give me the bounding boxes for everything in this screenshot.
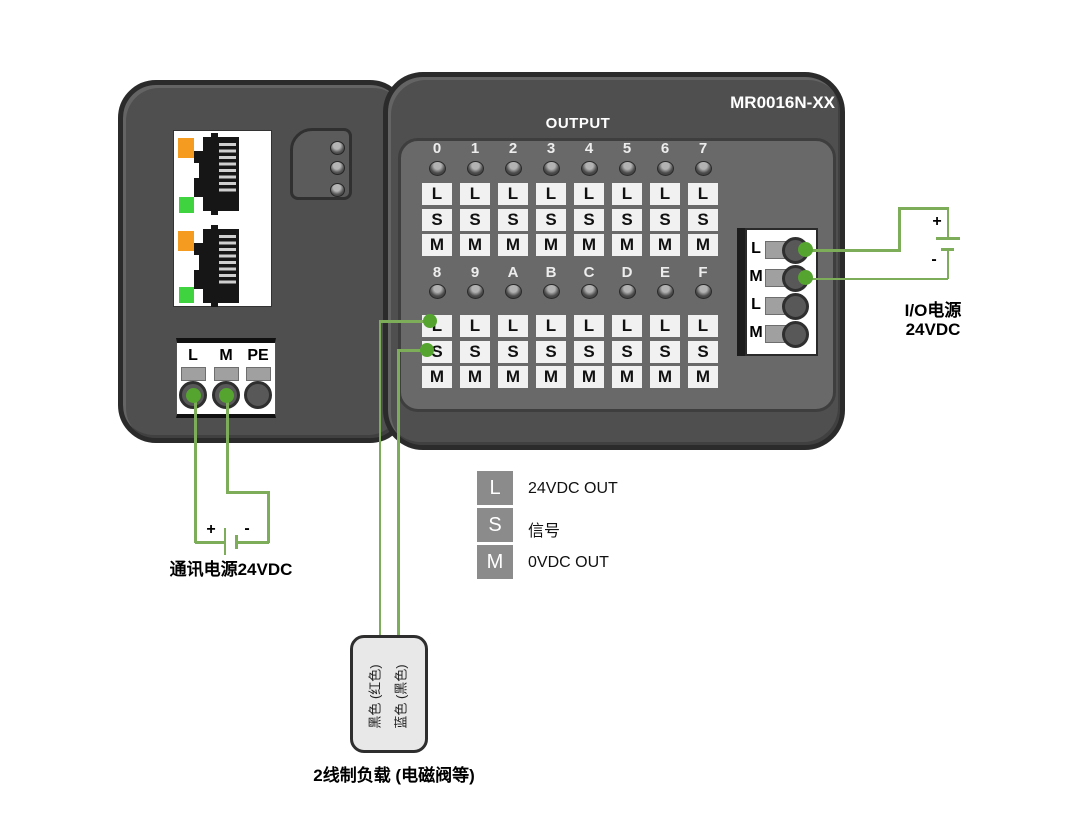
io-terminal-hole xyxy=(782,321,809,348)
terminal-L-ch4: L xyxy=(574,183,604,205)
wire-connection-dot xyxy=(798,270,813,285)
minus-sign: - xyxy=(239,520,255,538)
terminal-M-chF: M xyxy=(688,366,718,388)
channel-number-5: 5 xyxy=(612,140,642,157)
channel-led-icon-2 xyxy=(505,161,522,176)
terminal-S-ch0: S xyxy=(422,209,452,231)
wire-connection-dot xyxy=(219,388,234,403)
terminal-L-ch9: L xyxy=(460,315,490,337)
io-terminal-label-1: M xyxy=(748,268,764,286)
channel-led-icon-F xyxy=(695,284,712,299)
status-led-panel xyxy=(290,128,352,200)
terminal-L-ch5: L xyxy=(612,183,642,205)
terminal-L-chC: L xyxy=(574,315,604,337)
channel-number-9: 9 xyxy=(460,264,490,281)
channel-led-icon-3 xyxy=(543,161,560,176)
wire-segment xyxy=(267,491,270,543)
channel-led-icon-5 xyxy=(619,161,636,176)
comm-terminal-hole xyxy=(244,381,272,409)
legend-key-M: M xyxy=(477,545,513,579)
status-led-icon xyxy=(330,183,345,197)
io-power-label-line1: I/O电源 xyxy=(873,301,993,320)
status-led-icon xyxy=(330,161,345,175)
channel-number-D: D xyxy=(612,264,642,281)
terminal-L-ch1: L xyxy=(460,183,490,205)
io-terminal-label-3: M xyxy=(748,324,764,342)
terminal-L-chA: L xyxy=(498,315,528,337)
wire-segment xyxy=(195,541,225,544)
wire-connection-dot xyxy=(420,343,434,357)
terminal-M-ch7: M xyxy=(688,234,718,256)
wire-segment xyxy=(379,320,382,637)
channel-number-C: C xyxy=(574,264,604,281)
terminal-M-chE: M xyxy=(650,366,680,388)
wire-segment xyxy=(947,248,950,279)
channel-led-icon-7 xyxy=(695,161,712,176)
comm-terminal-label-M: M xyxy=(211,347,241,365)
terminal-M-ch0: M xyxy=(422,234,452,256)
wire-segment xyxy=(898,207,949,210)
terminal-S-chD: S xyxy=(612,341,642,363)
io-terminal-hole xyxy=(782,293,809,320)
legend-key-S: S xyxy=(477,508,513,542)
channel-led-icon-0 xyxy=(429,161,446,176)
terminal-S-ch1: S xyxy=(460,209,490,231)
channel-led-icon-4 xyxy=(581,161,598,176)
terminal-L-chB: L xyxy=(536,315,566,337)
terminal-S-chE: S xyxy=(650,341,680,363)
wire-segment xyxy=(806,249,901,252)
battery-minus-plate-icon xyxy=(235,535,238,549)
io-terminal-label-2: L xyxy=(748,296,764,314)
channel-number-6: 6 xyxy=(650,140,680,157)
output-section-label: OUTPUT xyxy=(518,115,638,132)
terminal-M-ch4: M xyxy=(574,234,604,256)
terminal-M-ch1: M xyxy=(460,234,490,256)
channel-number-E: E xyxy=(650,264,680,281)
channel-led-icon-9 xyxy=(467,284,484,299)
terminal-M-chA: M xyxy=(498,366,528,388)
channel-led-icon-E xyxy=(657,284,674,299)
channel-number-B: B xyxy=(536,264,566,281)
terminal-S-ch4: S xyxy=(574,209,604,231)
wire-segment xyxy=(947,207,950,238)
channel-number-1: 1 xyxy=(460,140,490,157)
plus-sign: + xyxy=(203,521,219,539)
terminal-M-chC: M xyxy=(574,366,604,388)
io-power-label-line2: 24VDC xyxy=(873,320,993,339)
terminal-M-chB: M xyxy=(536,366,566,388)
terminal-S-chC: S xyxy=(574,341,604,363)
terminal-L-chF: L xyxy=(688,315,718,337)
io-power-label: I/O电源 24VDC xyxy=(873,301,993,339)
comm-terminal-label-PE: PE xyxy=(243,347,273,365)
load-box xyxy=(350,635,428,753)
wire-segment xyxy=(226,397,229,493)
terminal-M-ch5: M xyxy=(612,234,642,256)
channel-number-8: 8 xyxy=(422,264,452,281)
terminal-S-chA: S xyxy=(498,341,528,363)
terminal-L-ch2: L xyxy=(498,183,528,205)
wire-segment xyxy=(806,278,948,281)
channel-led-icon-A xyxy=(505,284,522,299)
channel-led-icon-D xyxy=(619,284,636,299)
wire-connection-dot xyxy=(186,388,201,403)
wire-segment xyxy=(397,349,400,637)
wire-segment xyxy=(194,397,197,543)
terminal-L-ch3: L xyxy=(536,183,566,205)
module-model-label: MR0016N-XX xyxy=(690,93,835,113)
terminal-M-ch6: M xyxy=(650,234,680,256)
terminal-M-ch3: M xyxy=(536,234,566,256)
channel-number-3: 3 xyxy=(536,140,566,157)
channel-number-A: A xyxy=(498,264,528,281)
channel-number-7: 7 xyxy=(688,140,718,157)
legend-key-L: L xyxy=(477,471,513,505)
channel-number-F: F xyxy=(688,264,718,281)
channel-led-icon-C xyxy=(581,284,598,299)
wire-segment xyxy=(226,491,269,494)
terminal-S-ch3: S xyxy=(536,209,566,231)
legend-label-S: 信号 xyxy=(528,517,560,541)
terminal-L-ch6: L xyxy=(650,183,680,205)
rj45-jack-icon xyxy=(189,133,241,215)
io-terminal-block-edge xyxy=(737,228,745,356)
wire-connection-dot xyxy=(423,314,437,328)
wire-segment xyxy=(236,541,269,544)
wire-connection-dot xyxy=(798,242,813,257)
load-wire-label-1: 黑色 (红色) xyxy=(365,647,384,747)
terminal-L-ch0: L xyxy=(422,183,452,205)
terminal-S-chB: S xyxy=(536,341,566,363)
terminal-S-chF: S xyxy=(688,341,718,363)
rj45-jack-icon xyxy=(189,225,241,307)
channel-led-icon-1 xyxy=(467,161,484,176)
plus-sign: + xyxy=(929,213,945,231)
terminal-S-ch7: S xyxy=(688,209,718,231)
comm-power-label: 通讯电源24VDC xyxy=(131,555,331,580)
terminal-S-ch5: S xyxy=(612,209,642,231)
comm-terminal-release-button xyxy=(246,367,271,381)
channel-led-icon-6 xyxy=(657,161,674,176)
terminal-M-chD: M xyxy=(612,366,642,388)
minus-sign: - xyxy=(926,251,942,269)
ethernet-panel xyxy=(173,130,272,307)
io-terminal-label-0: L xyxy=(748,240,764,258)
legend-label-L: 24VDC OUT xyxy=(528,480,618,498)
terminal-S-ch6: S xyxy=(650,209,680,231)
channel-number-0: 0 xyxy=(422,140,452,157)
terminal-M-ch8: M xyxy=(422,366,452,388)
status-led-icon xyxy=(330,141,345,155)
load-label: 2线制负载 (电磁阀等) xyxy=(294,761,494,786)
terminal-L-ch7: L xyxy=(688,183,718,205)
comm-terminal-release-button xyxy=(214,367,239,381)
comm-terminal-release-button xyxy=(181,367,206,381)
battery-plus-plate-icon xyxy=(224,528,227,555)
terminal-M-ch9: M xyxy=(460,366,490,388)
battery-plus-plate-icon xyxy=(936,237,960,240)
legend-label-M: 0VDC OUT xyxy=(528,554,609,572)
terminal-S-ch2: S xyxy=(498,209,528,231)
wiring-diagram: LMPE MR0016N-XX OUTPUT 0LSM1LSM2LSM3LSM4… xyxy=(0,0,1088,840)
wire-segment xyxy=(898,207,901,251)
terminal-L-chD: L xyxy=(612,315,642,337)
channel-number-2: 2 xyxy=(498,140,528,157)
channel-led-icon-B xyxy=(543,284,560,299)
terminal-L-chE: L xyxy=(650,315,680,337)
channel-led-icon-8 xyxy=(429,284,446,299)
load-wire-label-2: 蓝色 (黑色) xyxy=(391,647,410,747)
terminal-M-ch2: M xyxy=(498,234,528,256)
terminal-S-ch9: S xyxy=(460,341,490,363)
comm-terminal-label-L: L xyxy=(178,347,208,365)
channel-number-4: 4 xyxy=(574,140,604,157)
